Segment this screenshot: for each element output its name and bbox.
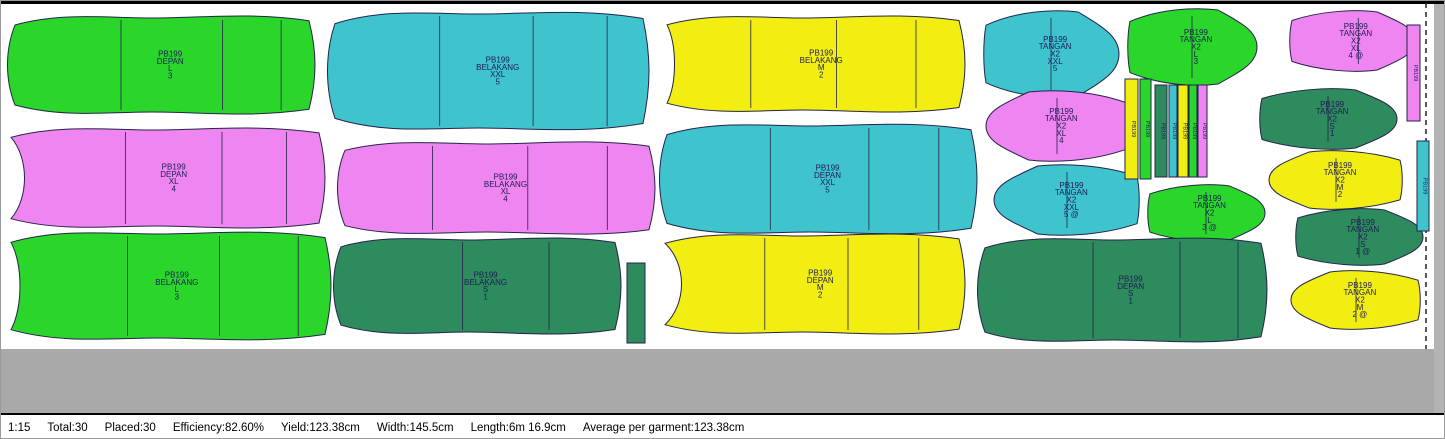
piece-label-strip-xxl-1: PB199 [1171, 123, 1177, 140]
piece-label-strip-s-1: PB199 [1159, 123, 1165, 140]
piece-label-strip-l-1: PB199 [1144, 121, 1150, 138]
pattern-piece-strip-xxl-1[interactable]: PB199 [1169, 85, 1177, 177]
pattern-piece-strip-s-2[interactable] [627, 263, 645, 343]
pattern-piece-belakang-m-2[interactable]: PB199BELAKANGM2 [667, 16, 965, 112]
piece-label-strip-m-2: PB199 [1181, 123, 1187, 140]
pattern-piece-belakang-s-1[interactable]: PB199BELAKANGS1 [334, 238, 622, 334]
piece-label-strip-m-1: PB199 [1130, 121, 1136, 138]
marker-application-window: PB199DEPANL3PB199BELAKANGXXL5PB199BELAKA… [0, 0, 1445, 439]
pattern-piece-depan-xl-4[interactable]: PB199DEPANXL4 [11, 128, 325, 228]
pattern-piece-strip-s-1[interactable]: PB199 [1155, 85, 1167, 177]
outside-marker-area-bottom [1, 349, 1445, 413]
status-total: Total:30 [47, 422, 87, 434]
status-average: Average per garment:123.38cm [583, 422, 745, 434]
status-placed: Placed:30 [105, 422, 156, 434]
pattern-piece-strip-xxl-2[interactable]: PB199 [1417, 141, 1429, 231]
pattern-piece-strip-xl[interactable]: PB199 [1407, 25, 1420, 121]
pattern-piece-belakang-xl-4[interactable]: PB199BELAKANGXL4 [338, 142, 656, 234]
status-yield: Yield:123.38cm [281, 422, 360, 434]
status-scale: 1:15 [8, 422, 30, 434]
pattern-piece-strip-m-1[interactable]: PB199 [1125, 79, 1138, 179]
pattern-piece-strip-xl-2[interactable]: PB199 [1198, 85, 1207, 177]
status-bar: 1:15 Total:30 Placed:30 Efficiency:82.60… [1, 413, 1445, 439]
status-efficiency: Efficiency:82.60% [173, 422, 264, 434]
pattern-piece-strip-l-2[interactable]: PB199 [1189, 85, 1197, 177]
pattern-piece-strip-m-2[interactable]: PB199 [1178, 85, 1188, 177]
pattern-piece-depan-s-1[interactable]: PB199DEPANS1 [978, 238, 1268, 342]
piece-label-strip-xxl-2: PB199 [1421, 178, 1427, 195]
piece-label-strip-xl: PB199 [1412, 65, 1418, 82]
status-width: Width:145.5cm [377, 422, 454, 434]
pattern-piece-belakang-l-3[interactable]: PB199BELAKANGL3 [11, 232, 331, 340]
pattern-piece-depan-l-3[interactable]: PB199DEPANL3 [8, 16, 316, 114]
piece-outline [627, 263, 645, 343]
marker-canvas[interactable]: PB199DEPANL3PB199BELAKANGXXL5PB199BELAKA… [1, 1, 1445, 413]
pattern-piece-belakang-xxl-5[interactable]: PB199BELAKANGXXL5 [328, 12, 650, 129]
pattern-piece-strip-l-1[interactable]: PB199 [1140, 79, 1151, 179]
outside-marker-area-right [1434, 1, 1445, 413]
pattern-piece-depan-xxl-5[interactable]: PB199DEPANXXL5 [660, 124, 978, 234]
piece-label-strip-xl-2: PB199 [1201, 123, 1207, 140]
piece-label-strip-l-2: PB199 [1191, 123, 1197, 140]
status-length: Length:6m 16.9cm [471, 422, 566, 434]
pattern-piece-depan-m-2[interactable]: PB199DEPANM2 [665, 234, 965, 334]
